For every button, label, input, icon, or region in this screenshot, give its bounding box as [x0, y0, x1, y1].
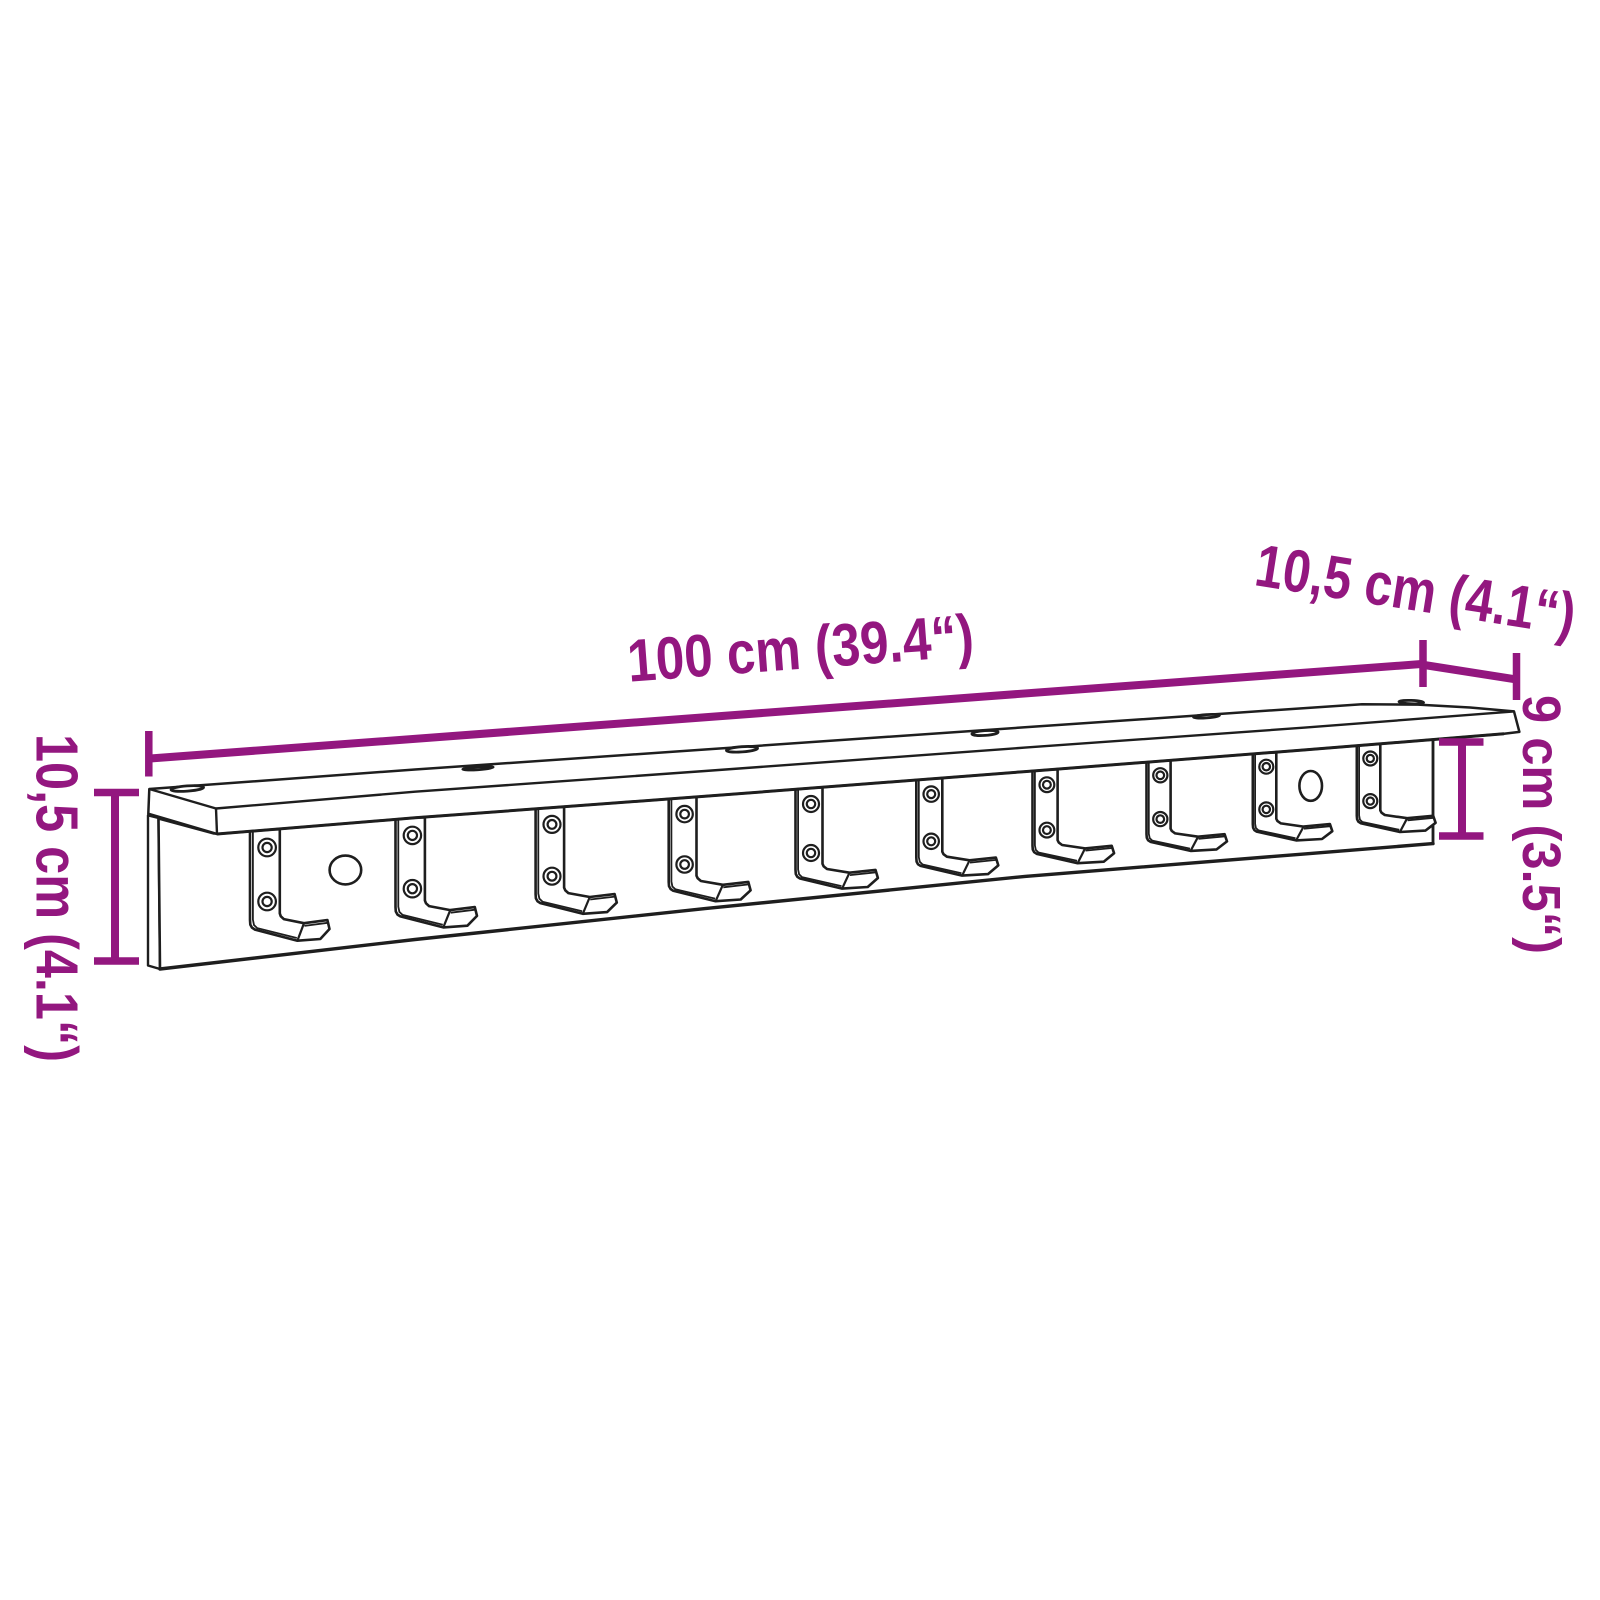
svg-text:10,5 cm (4.1“): 10,5 cm (4.1“): [24, 734, 90, 1062]
svg-text:9 cm (3.5“): 9 cm (3.5“): [1511, 695, 1571, 954]
